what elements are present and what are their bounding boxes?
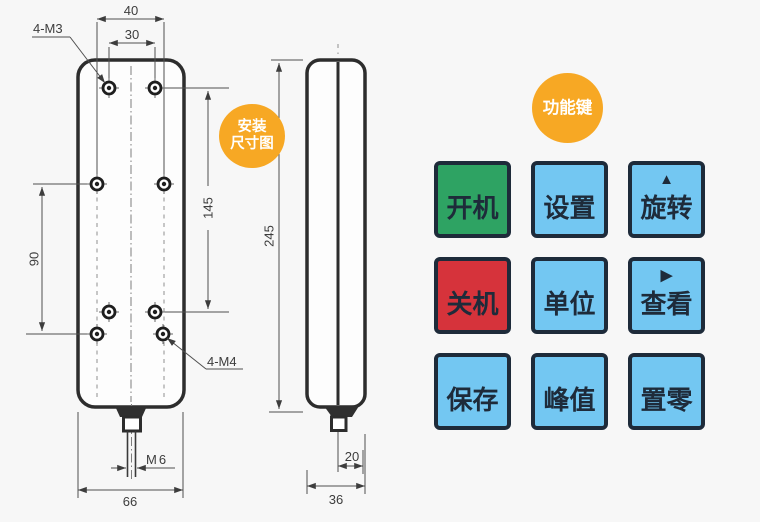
key-peak[interactable]: 峰值	[531, 353, 608, 430]
key-label: 关机	[446, 284, 498, 321]
install-dim-badge-line2: 尺寸图	[230, 136, 274, 153]
key-label: 单位	[543, 284, 595, 321]
function-keys-badge: 功能键	[532, 73, 603, 143]
side-view: 245 20 36	[262, 44, 365, 507]
side-shaft	[324, 406, 359, 431]
dim-M6: M6	[146, 452, 168, 467]
function-keys-grid: 开机 设置 ▲ 旋转 关机 单位 ▶ 查看 保存 峰值 置零	[434, 161, 705, 430]
key-unit[interactable]: 单位	[531, 257, 608, 334]
side-body-outline	[307, 60, 365, 407]
dim-66: 66	[123, 494, 137, 509]
key-rotate[interactable]: ▲ 旋转	[628, 161, 705, 238]
key-save[interactable]: 保存	[434, 353, 511, 430]
key-label: 查看	[640, 284, 692, 321]
key-view[interactable]: ▶ 查看	[628, 257, 705, 334]
key-power-off[interactable]: 关机	[434, 257, 511, 334]
label-4-M4: 4-M4	[207, 354, 237, 369]
dim-36: 36	[329, 492, 343, 507]
page: 4-M3 4-M4 40 30 145 90 M6 66	[0, 0, 760, 522]
right-arrow-icon: ▶	[661, 268, 673, 283]
dim-20: 20	[345, 449, 359, 464]
key-settings[interactable]: 设置	[531, 161, 608, 238]
key-label: 保存	[446, 380, 498, 417]
key-label: 设置	[543, 188, 595, 225]
label-4-M3: 4-M3	[33, 21, 63, 36]
dim-90: 90	[27, 252, 42, 266]
dim-30: 30	[125, 27, 139, 42]
key-label: 置零	[640, 380, 692, 417]
install-dim-badge: 安装 尺寸图	[219, 104, 285, 168]
dim-40: 40	[124, 3, 138, 18]
front-view: 4-M3 4-M4 40 30 145 90 M6 66	[26, 3, 243, 509]
key-label: 旋转	[640, 188, 692, 225]
up-arrow-icon: ▲	[659, 172, 674, 187]
key-power-on[interactable]: 开机	[434, 161, 511, 238]
dim-245: 245	[262, 225, 277, 247]
key-label: 峰值	[543, 380, 595, 417]
dim-145: 145	[201, 197, 216, 219]
install-dim-badge-line1: 安装	[238, 119, 267, 136]
key-zero[interactable]: 置零	[628, 353, 705, 430]
key-label: 开机	[446, 188, 498, 225]
